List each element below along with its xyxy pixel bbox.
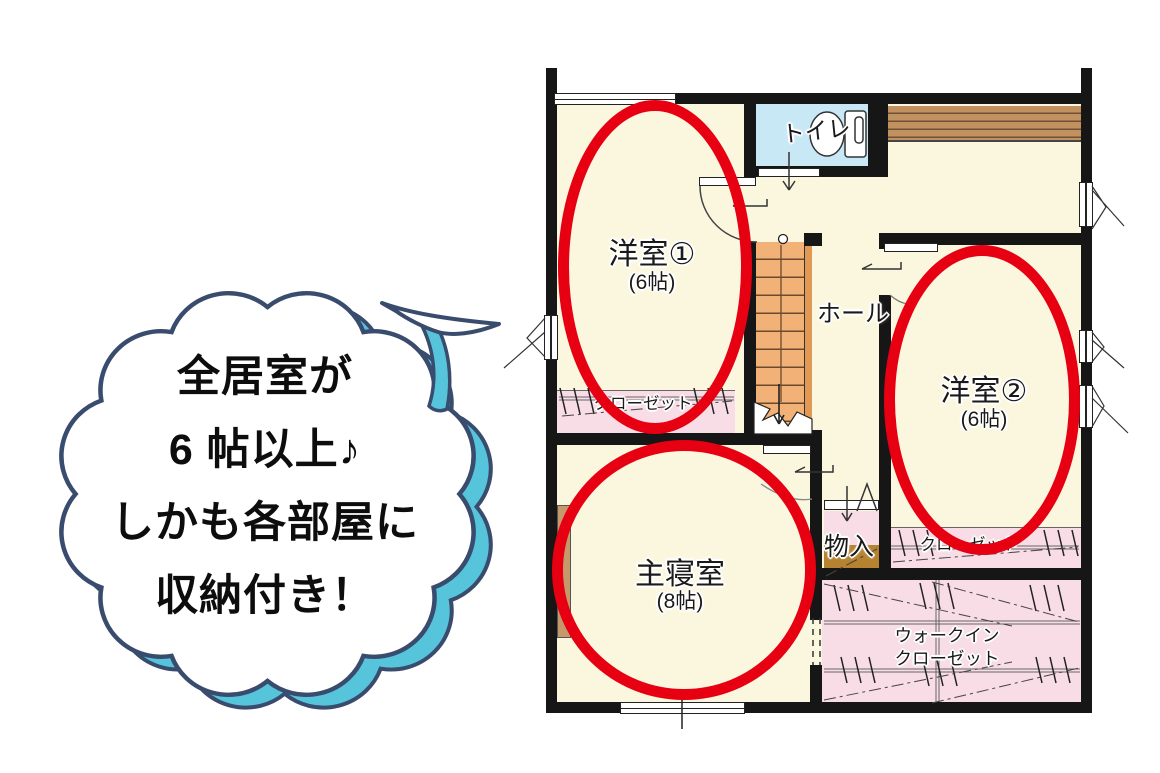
- bubble-tail-hook: [382, 303, 499, 334]
- bubble-text-line: 全居室が: [45, 341, 485, 414]
- bubble-text-line: 収納付き！: [45, 560, 485, 633]
- page-canvas: 洋室① (6帖) 洋室② (6帖) 主寝室 (8帖) トイレ ホール 物入 クロ…: [0, 0, 1160, 773]
- bubble-text: 全居室が 6 帖以上♪ しかも各部屋に 収納付き！: [45, 341, 485, 633]
- bubble-text-line: 6 帖以上♪: [45, 414, 485, 487]
- bubble-text-line: しかも各部屋に: [45, 487, 485, 560]
